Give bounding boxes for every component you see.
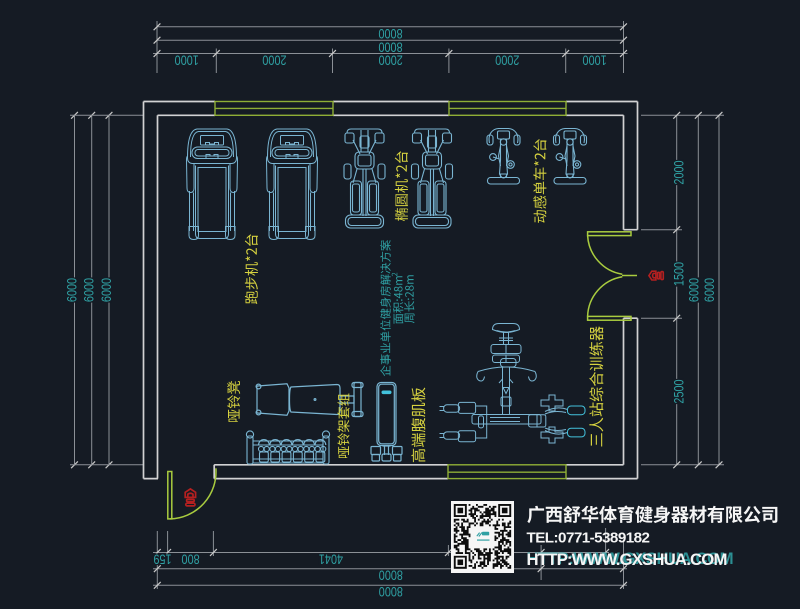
svg-text:6000: 6000 (687, 278, 702, 302)
svg-text:1000: 1000 (582, 53, 606, 68)
svg-text:2000: 2000 (672, 160, 687, 184)
svg-text:6000: 6000 (99, 278, 114, 302)
svg-text:2000: 2000 (495, 53, 519, 68)
svg-text:4041: 4041 (319, 551, 343, 566)
svg-text:800: 800 (182, 551, 200, 566)
svg-text:HTTP:WWW.GXSHUA.COM: HTTP:WWW.GXSHUA.COM (527, 550, 727, 569)
svg-text:2000: 2000 (379, 53, 403, 68)
svg-text:2000: 2000 (262, 53, 286, 68)
svg-text:6000: 6000 (64, 278, 79, 302)
svg-text:8000: 8000 (379, 568, 403, 583)
svg-text:2500: 2500 (672, 379, 687, 403)
svg-text:8000: 8000 (379, 584, 403, 599)
svg-text:8000: 8000 (378, 39, 402, 54)
svg-text:1000: 1000 (175, 53, 199, 68)
svg-text:6000: 6000 (702, 278, 717, 302)
svg-text:159: 159 (153, 551, 171, 566)
svg-text:8000: 8000 (378, 26, 402, 41)
svg-text:6000: 6000 (82, 278, 97, 302)
svg-text:TEL:0771-5389182: TEL:0771-5389182 (527, 530, 650, 547)
svg-text:1500: 1500 (672, 262, 687, 286)
